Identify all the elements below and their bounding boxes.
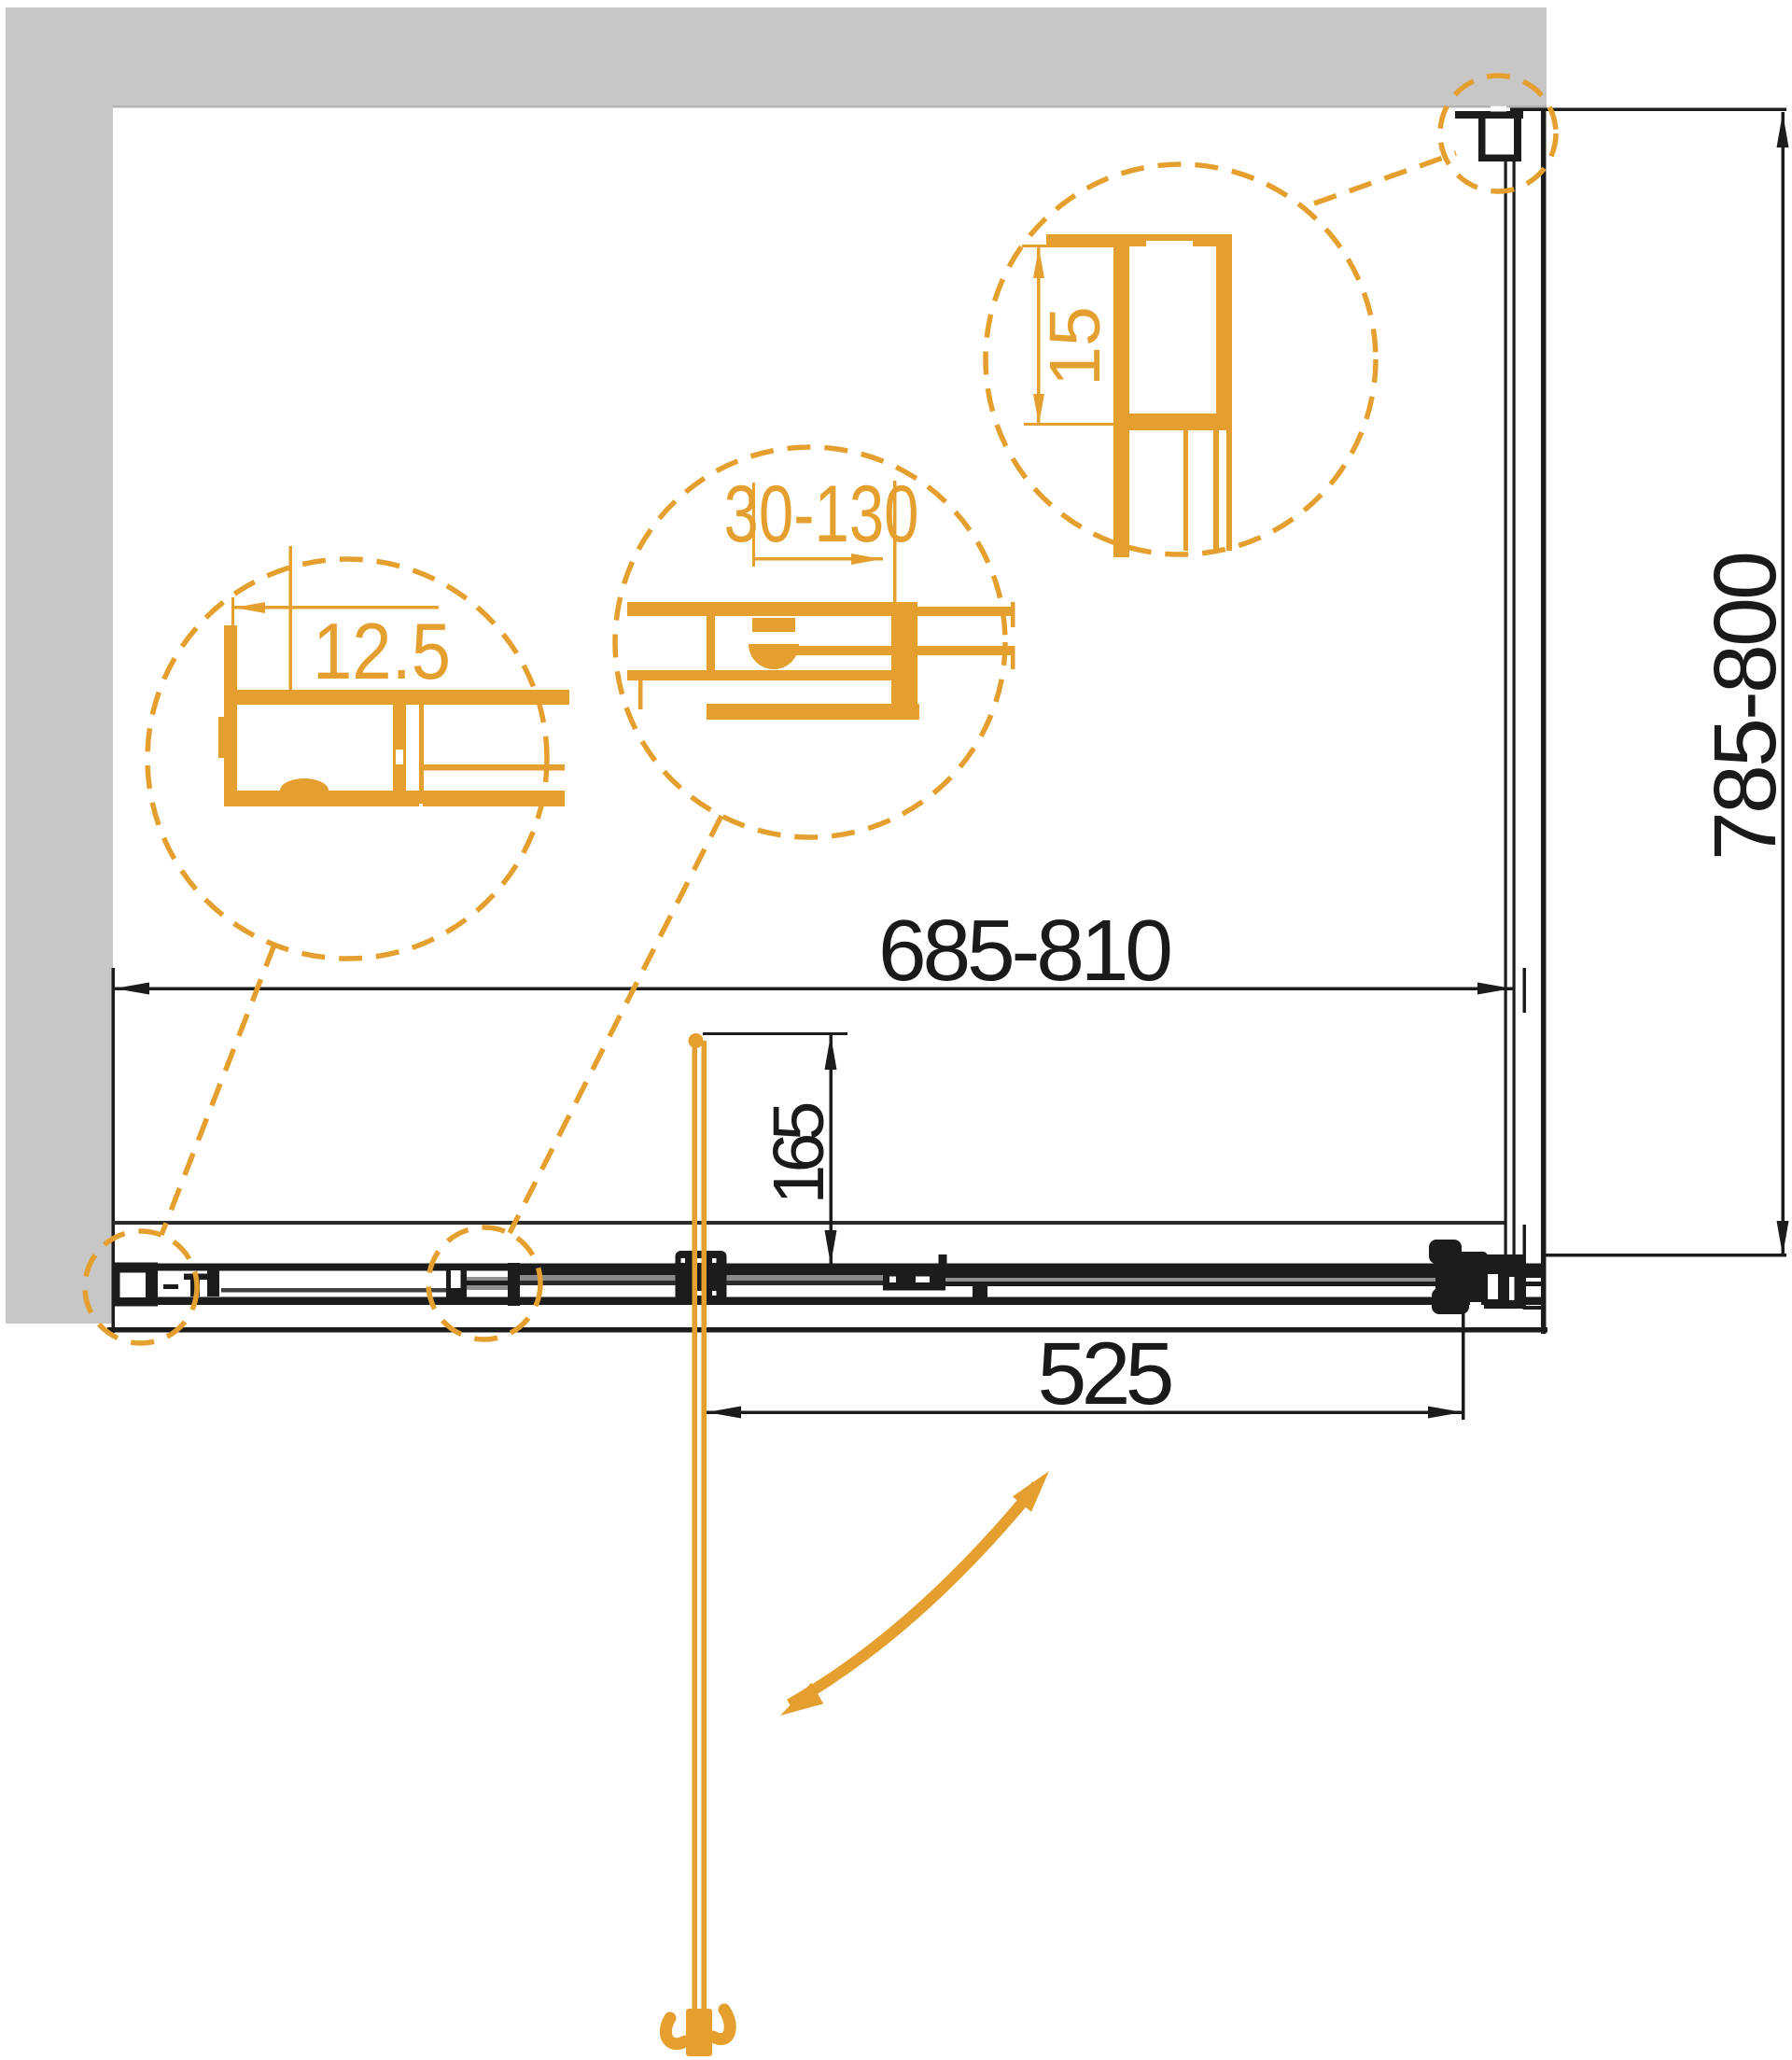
svg-text:12.5: 12.5 — [313, 608, 451, 696]
svg-text:525: 525 — [1038, 1324, 1175, 1423]
svg-text:785-800: 785-800 — [1696, 551, 1792, 861]
svg-text:685-810: 685-810 — [878, 902, 1173, 999]
svg-text:165: 165 — [759, 1101, 839, 1205]
svg-text:30-130: 30-130 — [724, 469, 919, 559]
svg-text:15: 15 — [1035, 306, 1115, 386]
